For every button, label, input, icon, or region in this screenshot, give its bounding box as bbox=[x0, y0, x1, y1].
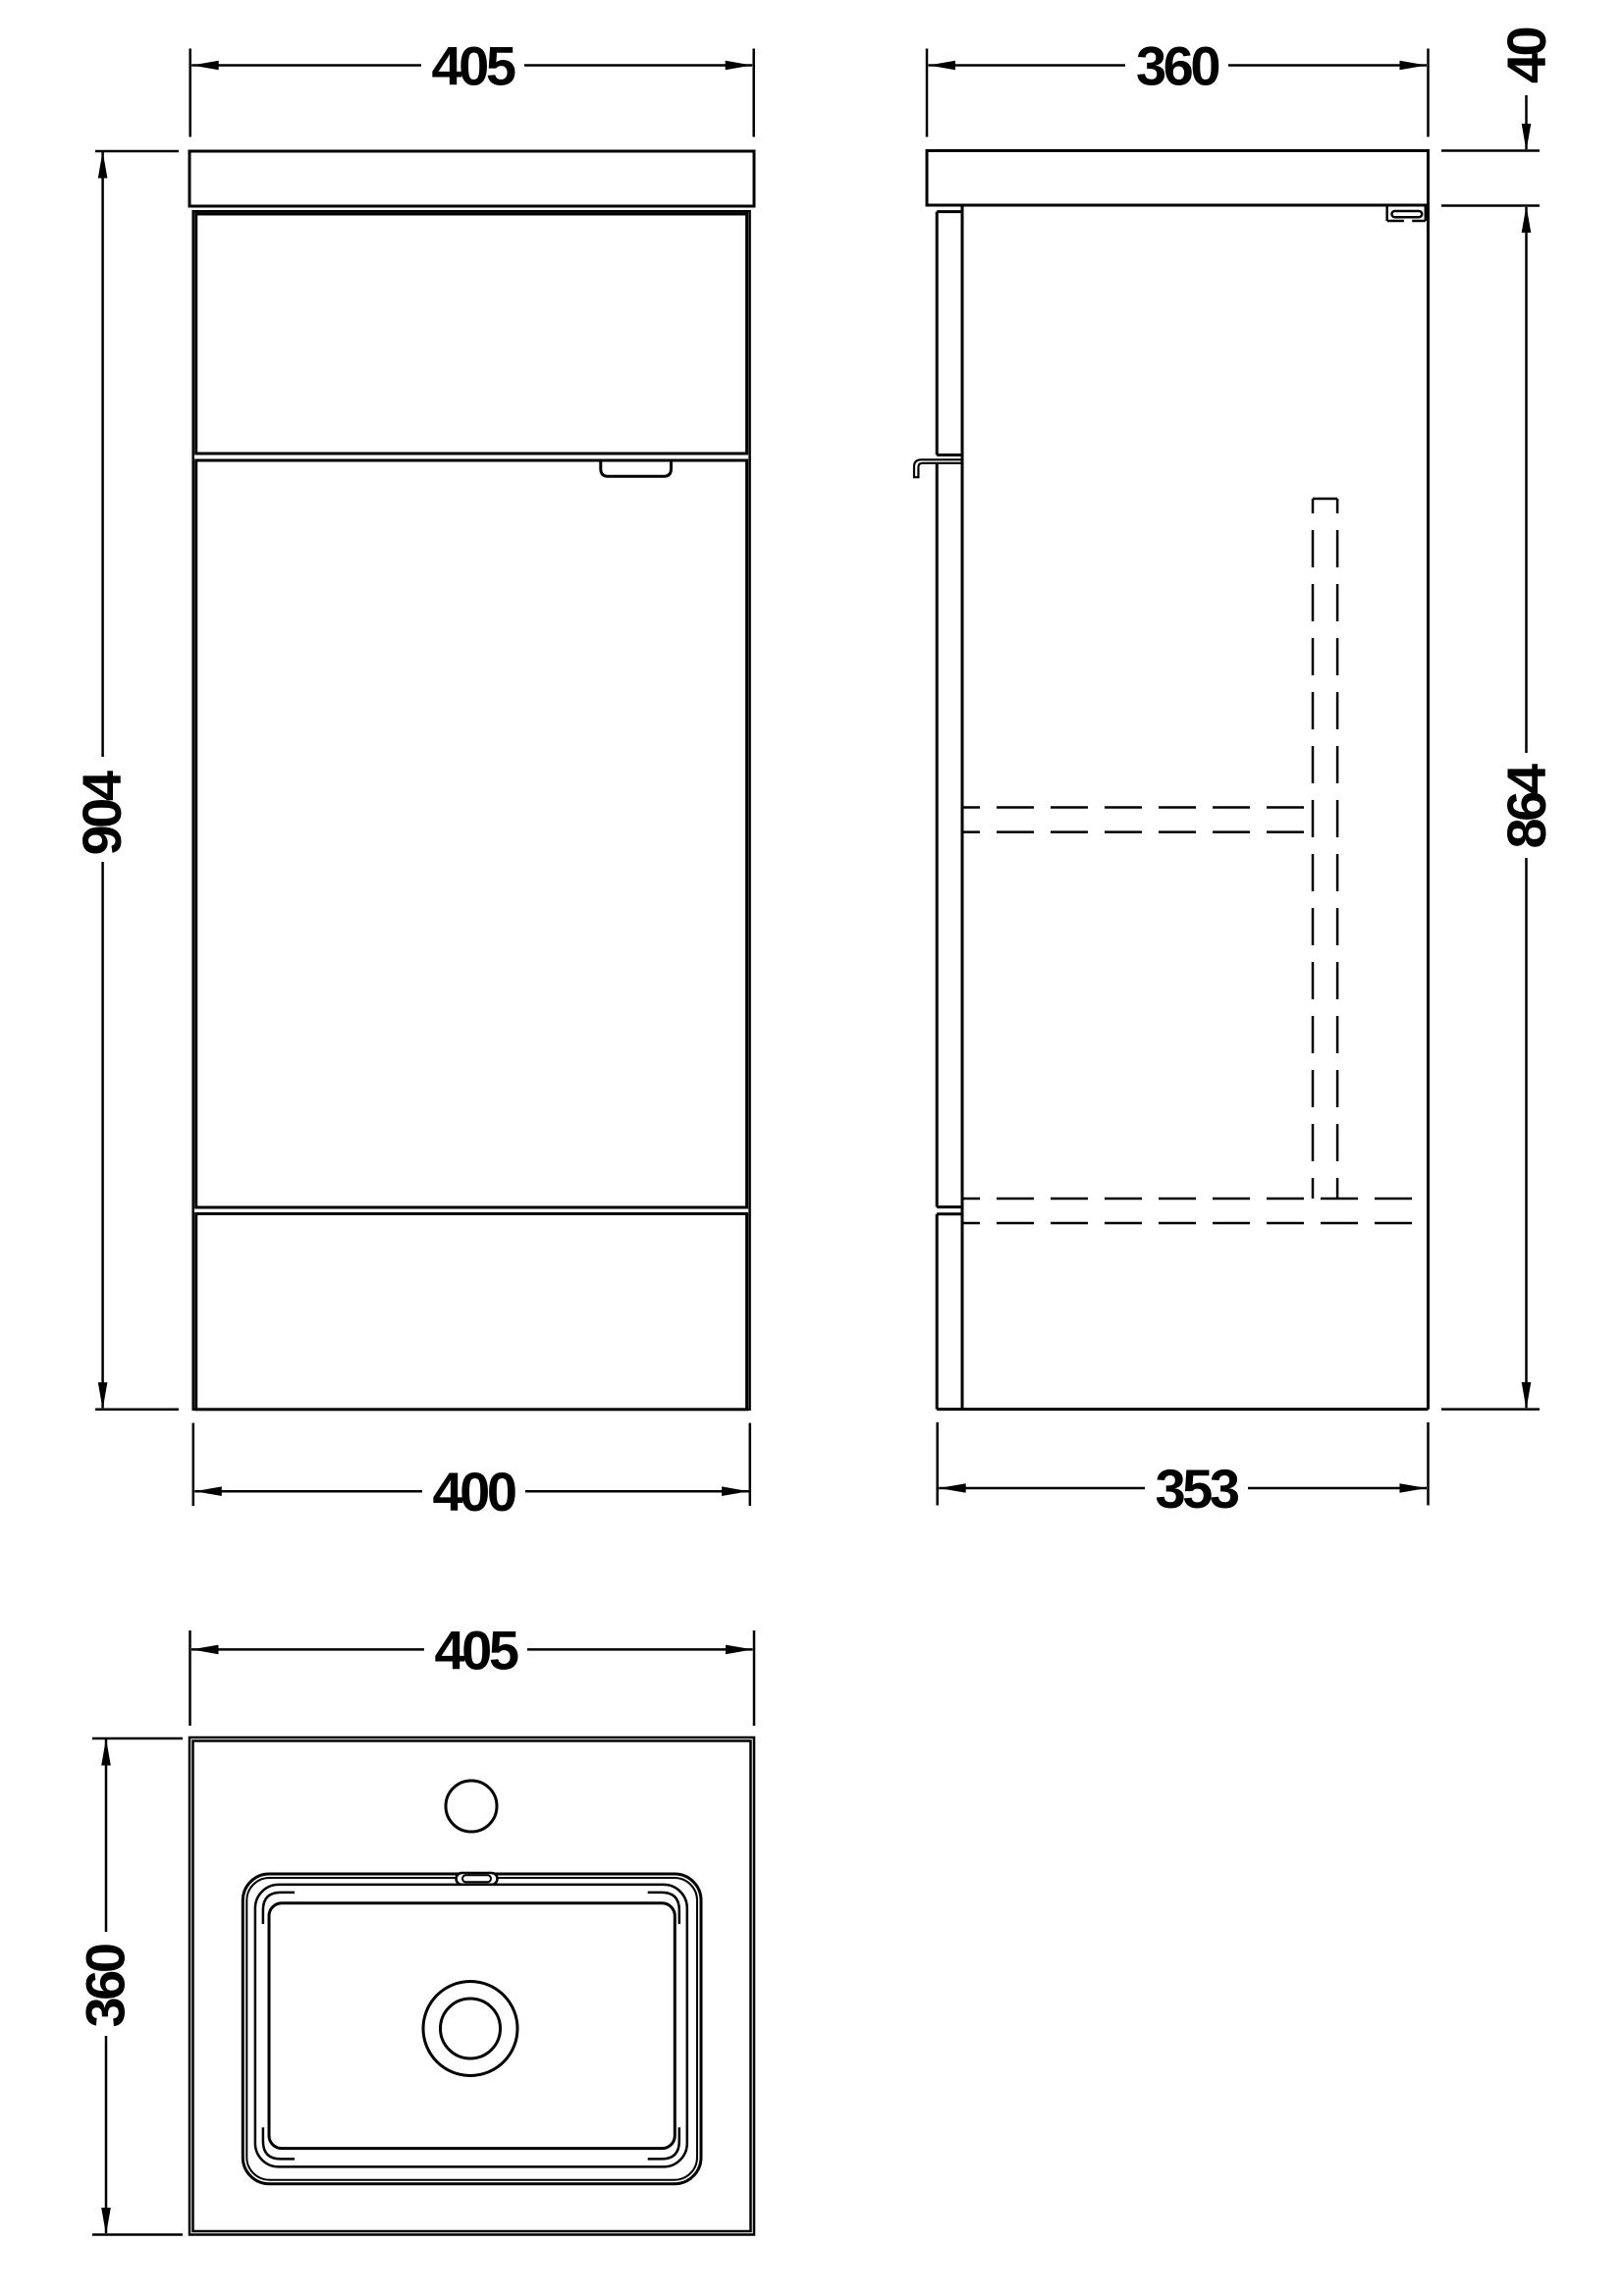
svg-text:40: 40 bbox=[1495, 28, 1557, 84]
svg-text:353: 353 bbox=[1156, 1458, 1239, 1520]
svg-text:405: 405 bbox=[435, 1619, 518, 1681]
svg-text:405: 405 bbox=[432, 35, 515, 97]
svg-text:864: 864 bbox=[1495, 764, 1557, 848]
svg-text:360: 360 bbox=[1136, 35, 1218, 97]
svg-text:904: 904 bbox=[71, 771, 133, 855]
svg-text:360: 360 bbox=[75, 1945, 136, 2027]
svg-text:400: 400 bbox=[433, 1461, 515, 1522]
